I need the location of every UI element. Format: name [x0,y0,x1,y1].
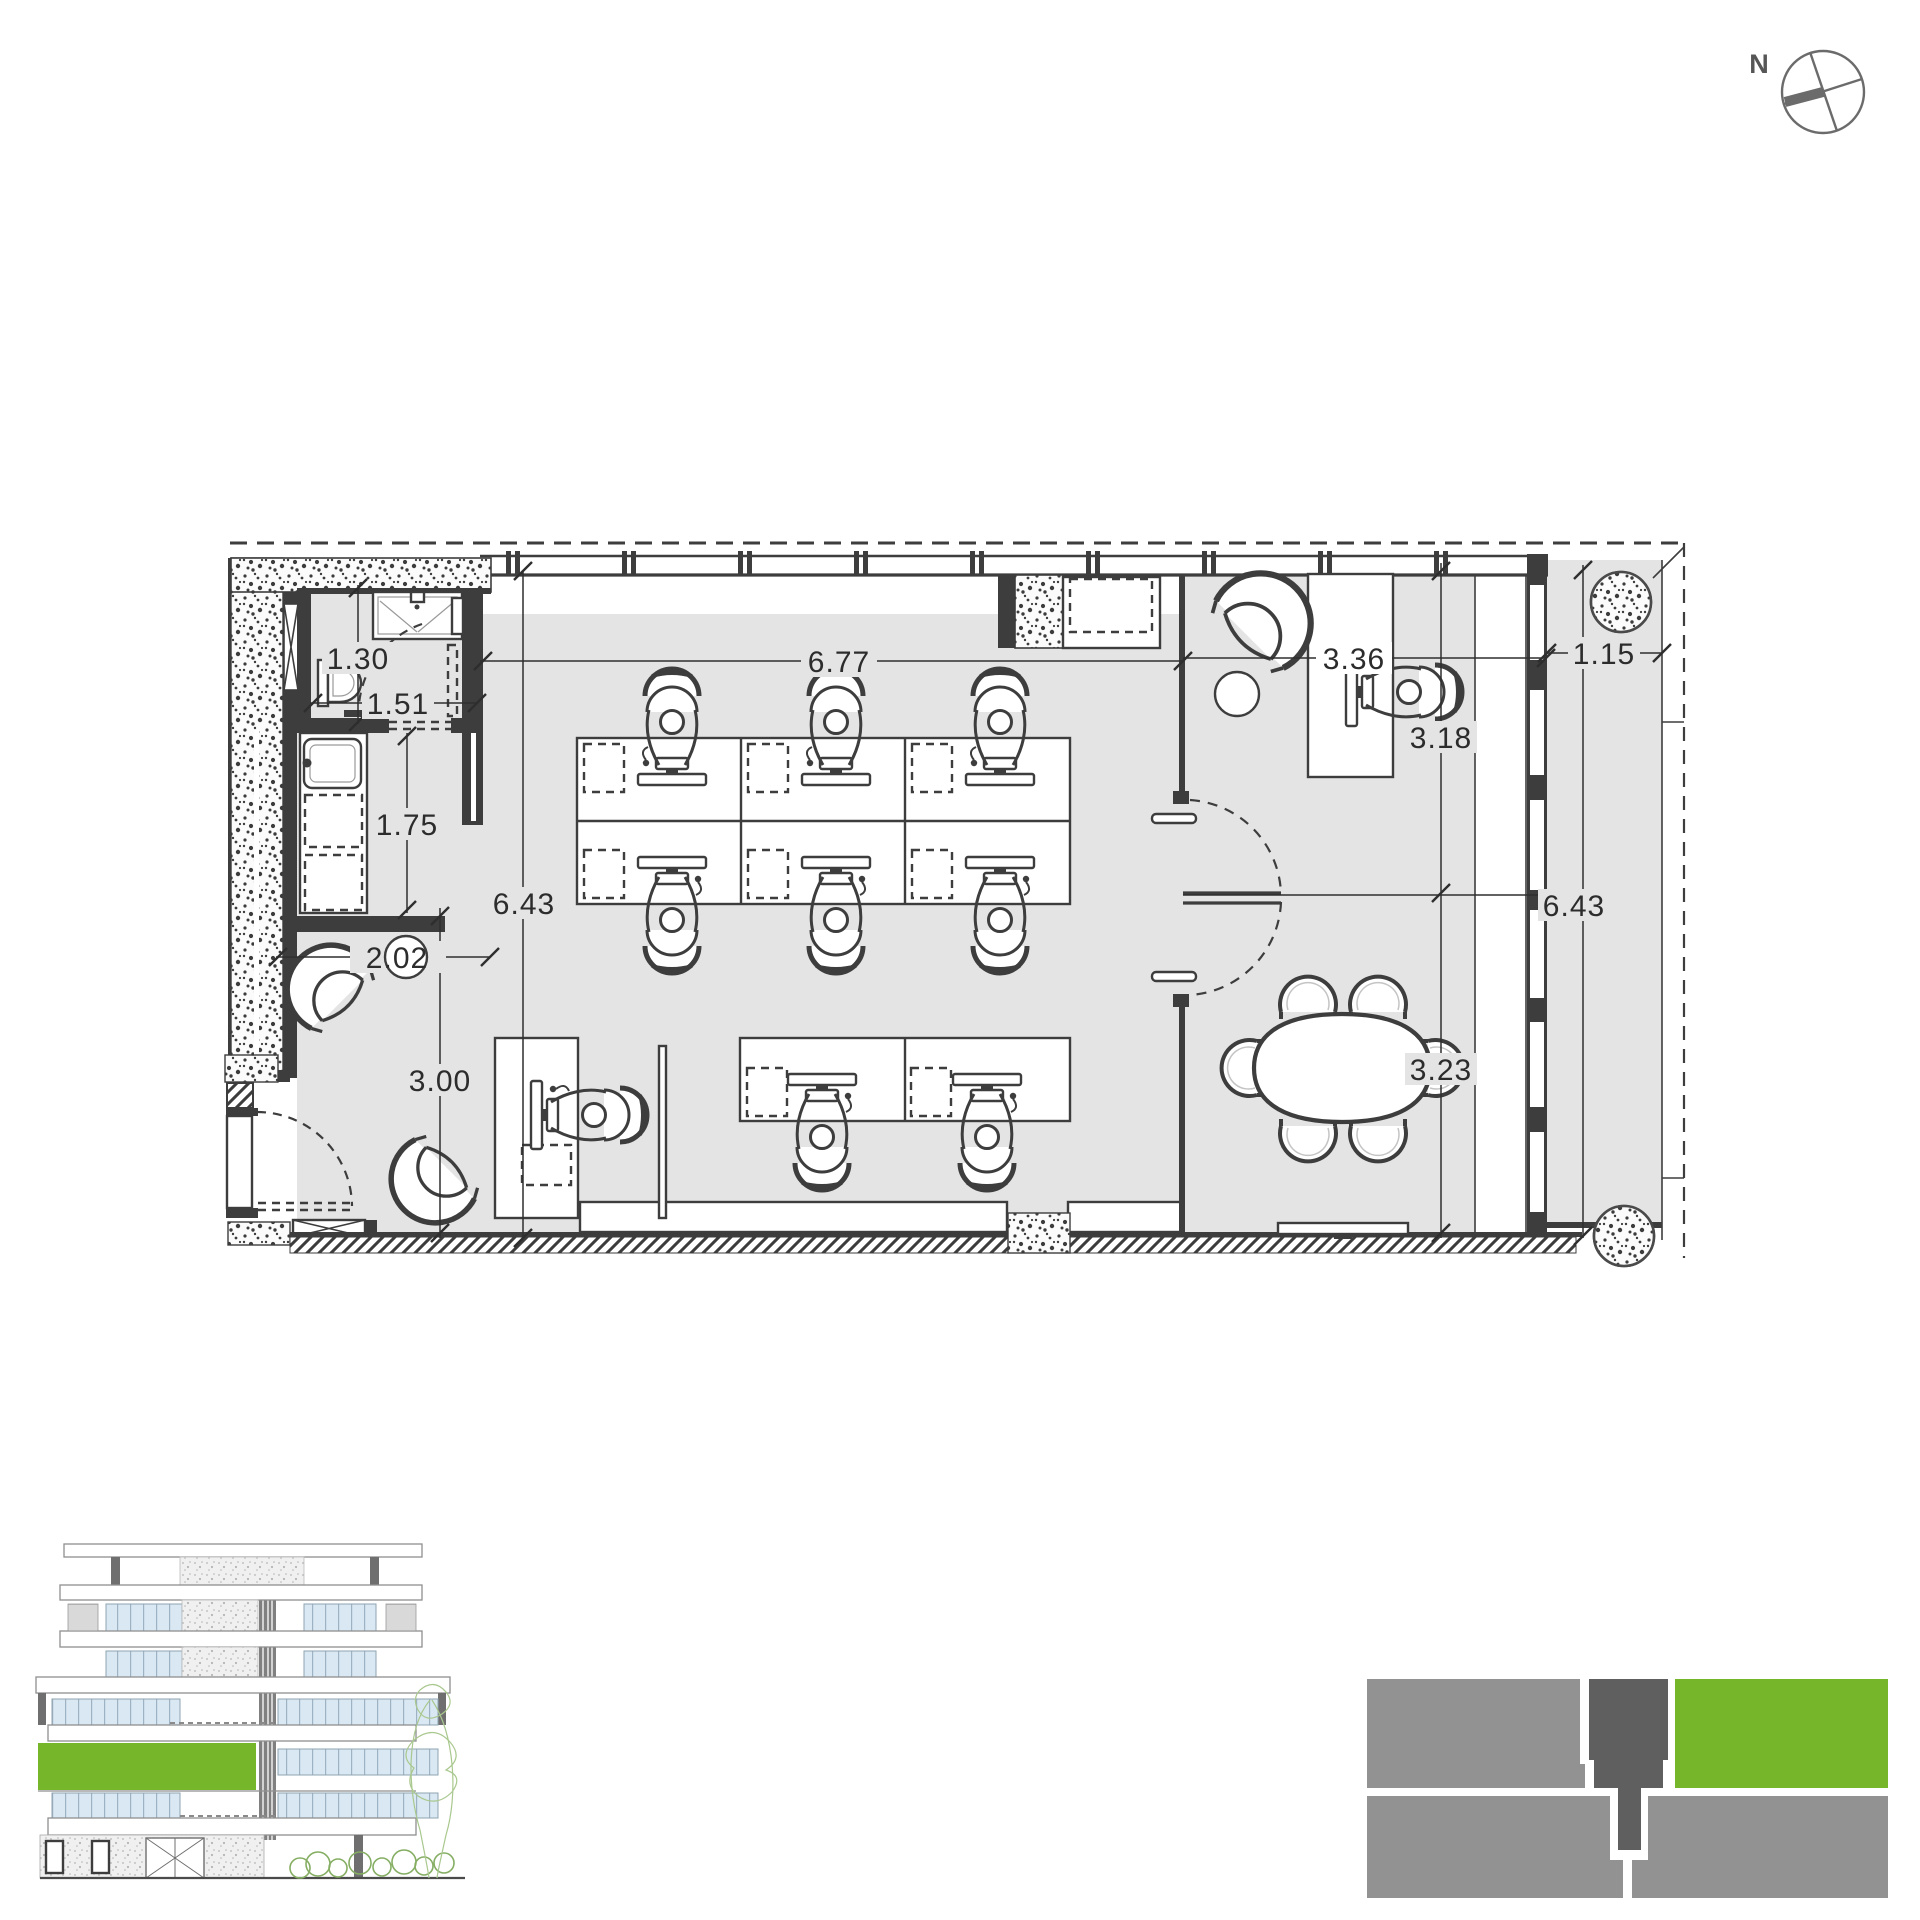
dimension-label: 2.02 [366,942,428,975]
building-elevation [36,1544,465,1878]
door-handle [1152,814,1196,823]
door-handle [1152,972,1196,981]
shrubs [290,1850,454,1878]
dimension-label: 3.00 [409,1065,471,1098]
dimension-label: 1.75 [376,809,438,842]
site-block-highlighted-unit [1673,1677,1890,1790]
north-label: N [1749,49,1769,79]
dimension-label: 6.43 [1543,890,1605,923]
architectural-sheet: 1.30 1.51 1.75 6.43 2.02 3.00 6.77 3.36 … [0,0,1920,1920]
window-band [304,1604,376,1631]
dimension-label: 1.51 [367,688,429,721]
shower-icon [373,592,462,639]
dimension-label: 1.15 [1573,638,1635,671]
tree-icon [1591,572,1651,632]
meeting-table [1254,1014,1430,1122]
window-band [304,1651,376,1677]
north-window-band [480,551,1548,576]
window-band [106,1651,182,1677]
window-band [278,1749,438,1775]
north-west-wall [231,558,491,592]
dimension-label: 3.18 [1410,722,1472,755]
highlighted-floor [38,1743,256,1790]
dimension-label: 6.77 [808,646,870,679]
wc-niche [452,598,463,634]
partition-screen [659,1046,666,1218]
terrace-hatch-band [290,1237,1576,1253]
floor-plan: 1.30 1.51 1.75 6.43 2.02 3.00 6.77 3.36 … [225,543,1684,1266]
site-block-southeast [1630,1794,1890,1900]
entry-pier [227,1083,253,1108]
compass-needle [1785,92,1823,102]
low-credenza [1068,1202,1182,1232]
site-block-northwest [1365,1677,1587,1790]
window-band [278,1699,438,1725]
window-band [106,1604,182,1631]
kitchen-sink-icon [303,739,362,788]
low-credenza [580,1202,1007,1232]
site-block-southwest [1365,1794,1625,1900]
compass: N [1749,49,1864,133]
dimension-label: 6.43 [493,888,555,921]
tv-console [1278,1223,1408,1234]
plan-drawing: 1.30 1.51 1.75 6.43 2.02 3.00 6.77 3.36 … [0,0,1920,1920]
glazing-track-strip [1475,576,1527,1233]
entrance-door [146,1838,204,1878]
entry-door-jamb [227,1116,252,1208]
dimension-label: 3.23 [1410,1054,1472,1087]
window-band [52,1699,180,1725]
storage-block [998,575,1160,648]
side-table-icon [1215,672,1259,716]
dimension-label: 1.30 [327,643,389,676]
window-band [52,1793,180,1818]
site-key-diagram [1365,1677,1890,1900]
tree-icon [1594,1206,1654,1266]
dimension-label: 3.36 [1323,643,1385,676]
